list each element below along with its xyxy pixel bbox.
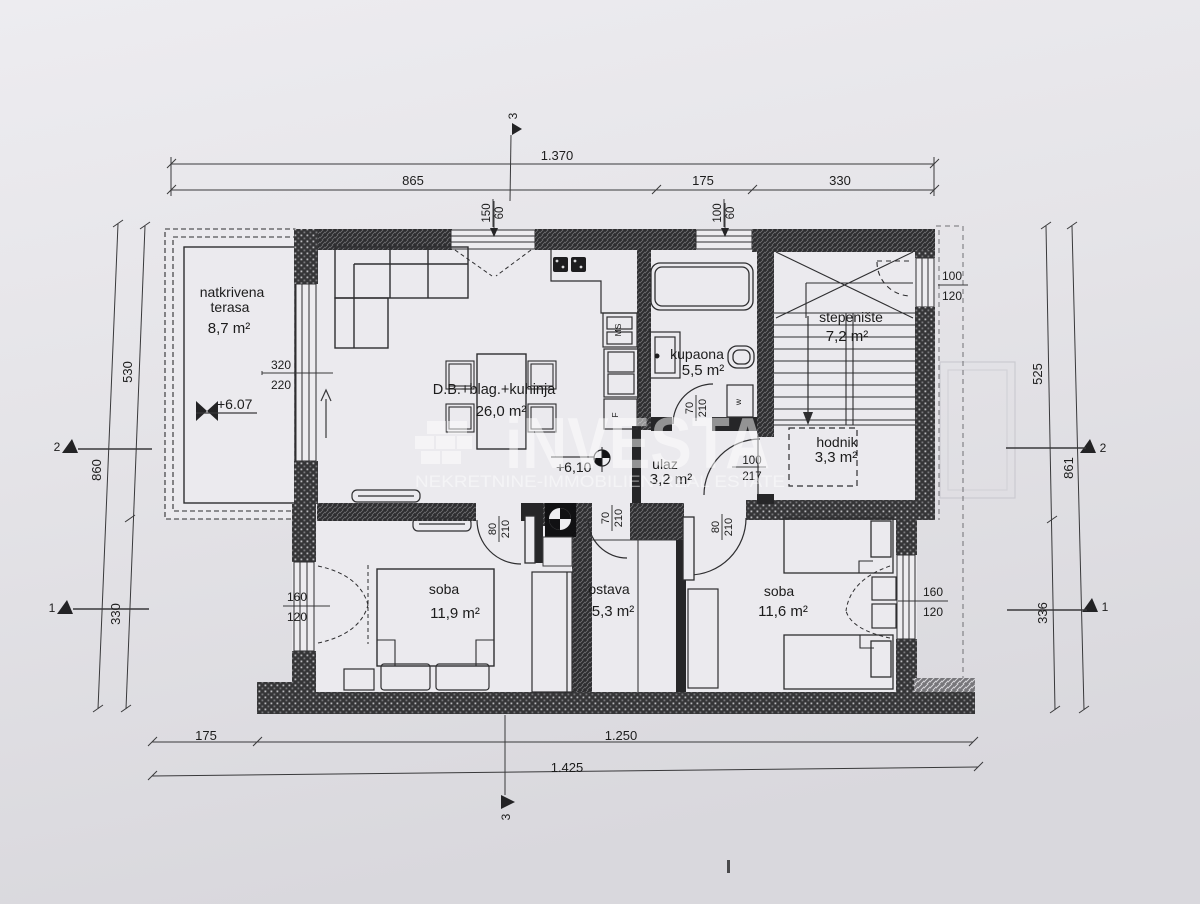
svg-text:100: 100 <box>942 269 962 283</box>
svg-text:2: 2 <box>54 440 61 454</box>
svg-text:8,7 m²: 8,7 m² <box>208 320 251 337</box>
svg-text:175: 175 <box>195 728 217 743</box>
svg-text:160: 160 <box>287 590 307 604</box>
svg-text:3: 3 <box>499 813 513 820</box>
svg-text:150: 150 <box>481 203 493 222</box>
svg-text:ostava: ostava <box>588 581 629 597</box>
svg-text:hodnik: hodnik <box>816 434 858 450</box>
svg-text:MS: MS <box>613 323 623 336</box>
svg-text:stepenište: stepenište <box>819 309 883 325</box>
svg-text:soba: soba <box>764 583 795 599</box>
svg-text:1: 1 <box>49 601 56 615</box>
svg-text:861: 861 <box>1061 457 1076 479</box>
svg-text:2: 2 <box>1100 441 1107 455</box>
svg-text:NEKRETNINE-IMMOBILIEN-REAL EST: NEKRETNINE-IMMOBILIEN-REAL ESTATE <box>415 472 785 491</box>
svg-text:D.B.+blag.+kuhinja: D.B.+blag.+kuhinja <box>433 382 556 398</box>
svg-text:terasa: terasa <box>211 299 250 315</box>
svg-text:+6.07: +6.07 <box>217 396 253 412</box>
svg-text:120: 120 <box>923 605 943 619</box>
svg-text:210: 210 <box>613 509 625 527</box>
svg-text:11,6 m²: 11,6 m² <box>758 603 808 620</box>
svg-text:60: 60 <box>494 207 506 220</box>
svg-text:7,2 m²: 7,2 m² <box>826 328 869 345</box>
svg-text:220: 220 <box>271 378 291 392</box>
svg-text:soba: soba <box>429 581 460 597</box>
svg-text:11,9 m²: 11,9 m² <box>430 605 480 622</box>
svg-text:530: 530 <box>120 361 135 383</box>
svg-text:865: 865 <box>402 173 424 188</box>
svg-text:330: 330 <box>829 173 851 188</box>
svg-text:210: 210 <box>500 520 512 538</box>
svg-text:160: 160 <box>923 585 943 599</box>
svg-text:525: 525 <box>1030 363 1045 385</box>
svg-text:1.250: 1.250 <box>605 728 638 743</box>
svg-text:860: 860 <box>89 459 104 481</box>
svg-text:natkrivena: natkrivena <box>200 284 265 300</box>
svg-text:5,5 m²: 5,5 m² <box>682 362 725 379</box>
svg-text:1.425: 1.425 <box>551 760 584 775</box>
svg-text:5,3 m²: 5,3 m² <box>592 603 635 620</box>
svg-text:80: 80 <box>487 523 499 535</box>
svg-text:kupaona: kupaona <box>670 346 724 362</box>
svg-text:70: 70 <box>600 512 612 524</box>
svg-text:336: 336 <box>1035 602 1050 624</box>
svg-text:80: 80 <box>710 521 722 533</box>
svg-text:60: 60 <box>725 207 737 220</box>
svg-text:3: 3 <box>506 112 520 119</box>
svg-text:1: 1 <box>1102 600 1109 614</box>
svg-text:100: 100 <box>712 203 724 222</box>
svg-text:210: 210 <box>723 518 735 536</box>
svg-text:330: 330 <box>108 603 123 625</box>
svg-text:120: 120 <box>942 289 962 303</box>
svg-text:3,3 m²: 3,3 m² <box>815 449 858 466</box>
svg-text:320: 320 <box>271 358 291 372</box>
svg-text:1.370: 1.370 <box>541 148 574 163</box>
svg-text:120: 120 <box>287 610 307 624</box>
svg-text:175: 175 <box>692 173 714 188</box>
